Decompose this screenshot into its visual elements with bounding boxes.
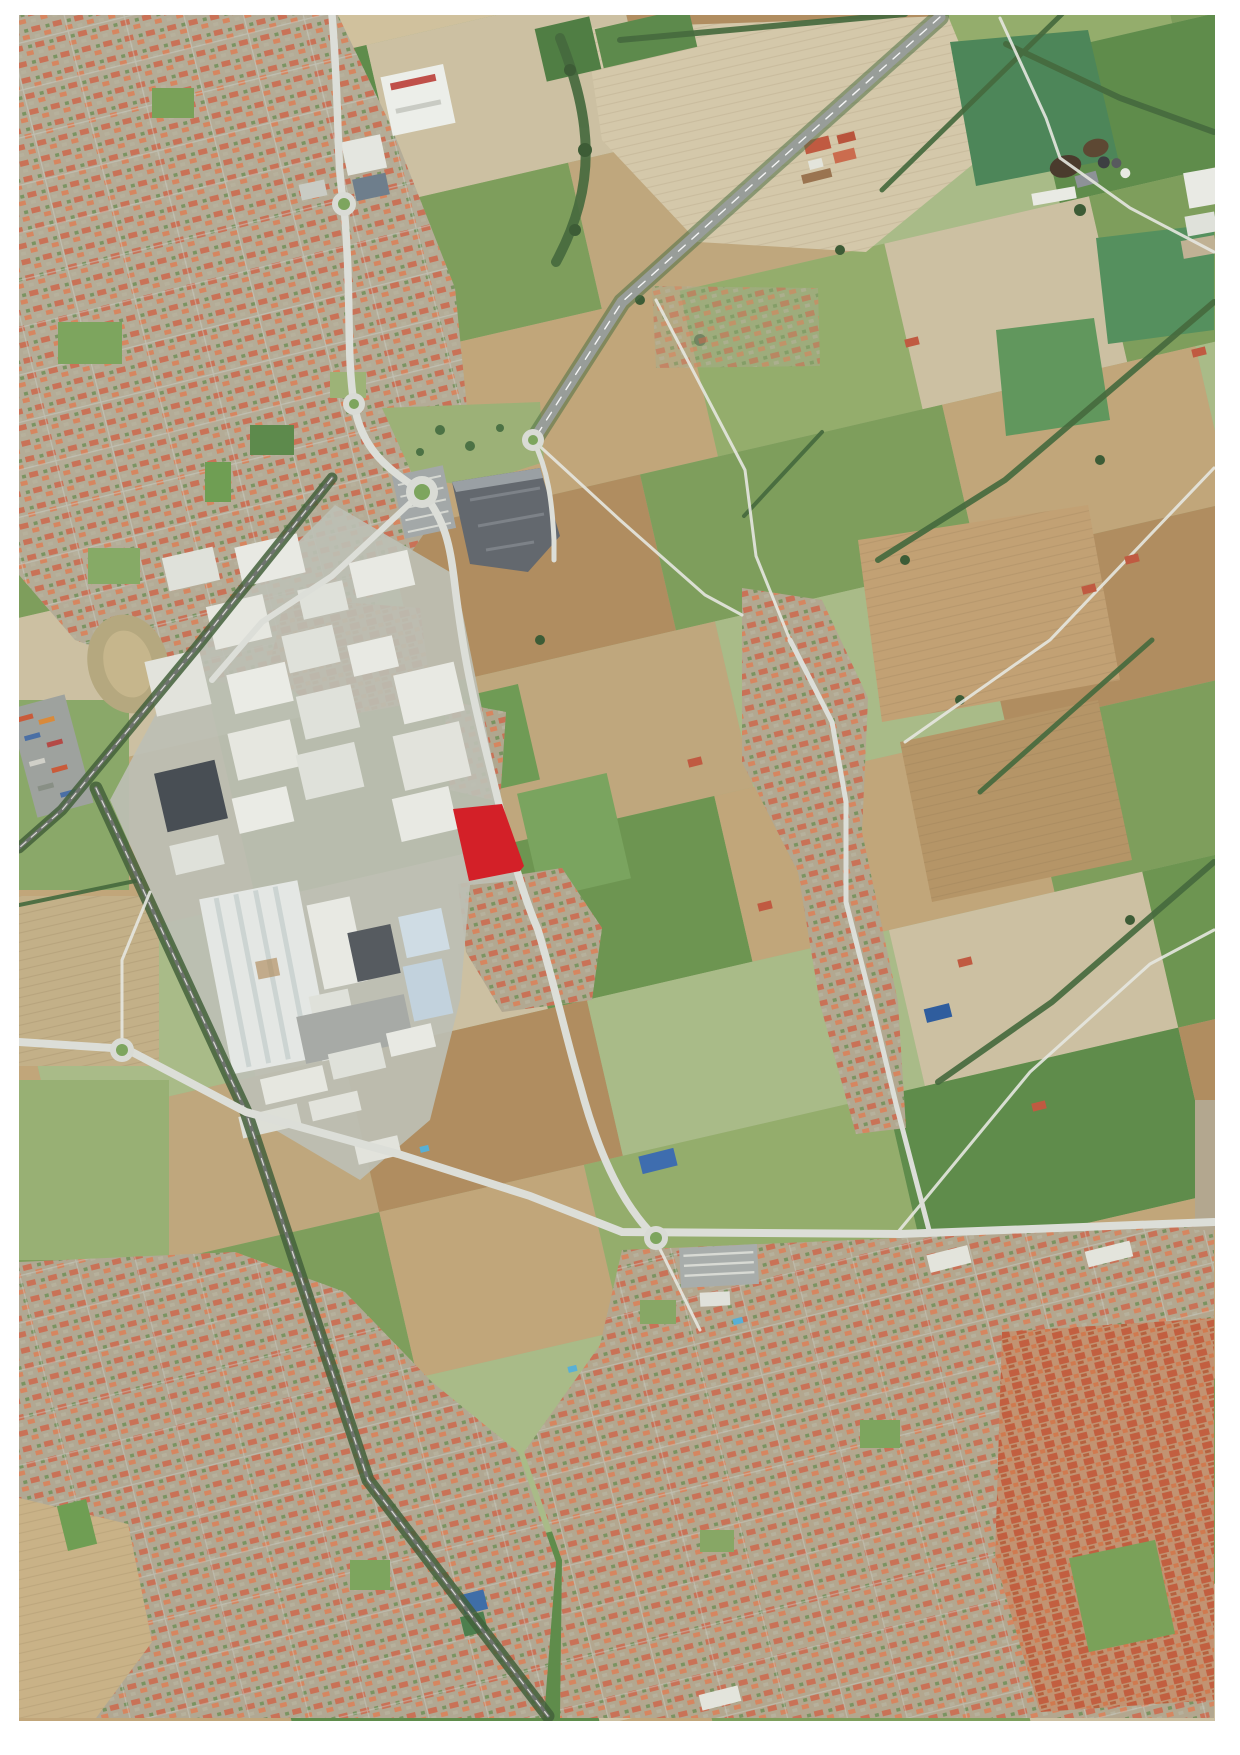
market-parking [679, 1244, 759, 1288]
hamlet-northeast [652, 286, 820, 368]
aerial-photo [0, 0, 1240, 1755]
plan-page [0, 0, 1240, 1755]
